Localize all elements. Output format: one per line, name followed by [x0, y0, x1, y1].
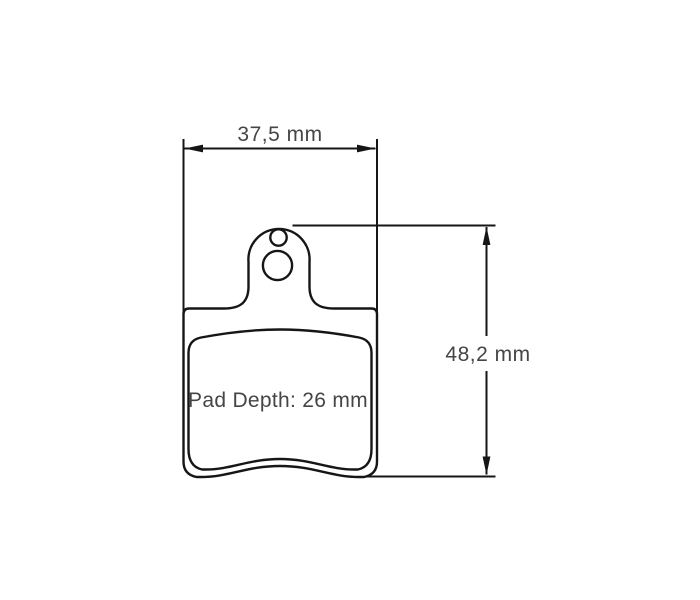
brake-pad-shape: Pad Depth: 26 mm [184, 229, 378, 477]
height-dimension-label: 48,2 mm [445, 343, 530, 366]
brake-pad-dimension-diagram: 37,5 mm 48,2 mm Pad Depth: 26 mm [0, 0, 700, 600]
height-arrow-up-icon [483, 227, 491, 246]
pad-depth-label: Pad Depth: 26 mm [188, 389, 368, 412]
width-dimension-label: 37,5 mm [237, 123, 322, 146]
diagram-canvas: 37,5 mm 48,2 mm Pad Depth: 26 mm [0, 0, 700, 600]
tab-hole-small [270, 229, 286, 245]
tab-hole-large [263, 251, 292, 280]
width-arrow-right-icon [357, 145, 376, 153]
height-arrow-down-icon [483, 457, 491, 476]
width-arrow-left-icon [185, 145, 204, 153]
